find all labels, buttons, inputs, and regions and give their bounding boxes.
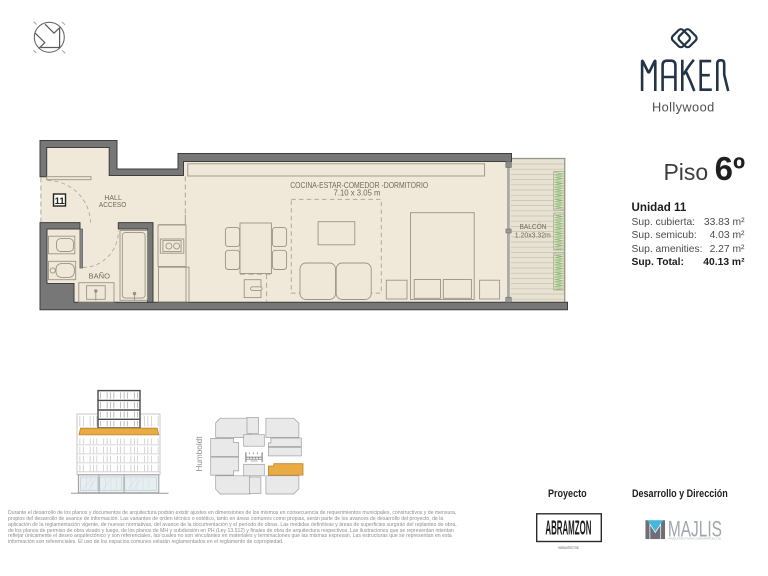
svg-text:ACCESO: ACCESO	[99, 202, 127, 209]
svg-text:ABRAMZON: ABRAMZON	[545, 517, 591, 539]
svg-text:ARQUITECTURA | DESARROLLOS: ARQUITECTURA | DESARROLLOS	[668, 536, 721, 540]
svg-text:1.20x3.32m: 1.20x3.32m	[515, 233, 551, 240]
svg-text:7.10 x 3.05 m: 7.10 x 3.05 m	[334, 188, 381, 198]
svg-text:Hollywood: Hollywood	[652, 100, 715, 115]
svg-text:11: 11	[55, 196, 66, 207]
svg-text:BAÑO: BAÑO	[89, 272, 111, 281]
svg-text:HALL: HALL	[104, 195, 122, 202]
svg-text:+ARQUITECTOS: +ARQUITECTOS	[558, 545, 580, 548]
svg-text:BALCÓN: BALCÓN	[520, 222, 547, 231]
svg-text:Humboldt: Humboldt	[195, 436, 204, 472]
